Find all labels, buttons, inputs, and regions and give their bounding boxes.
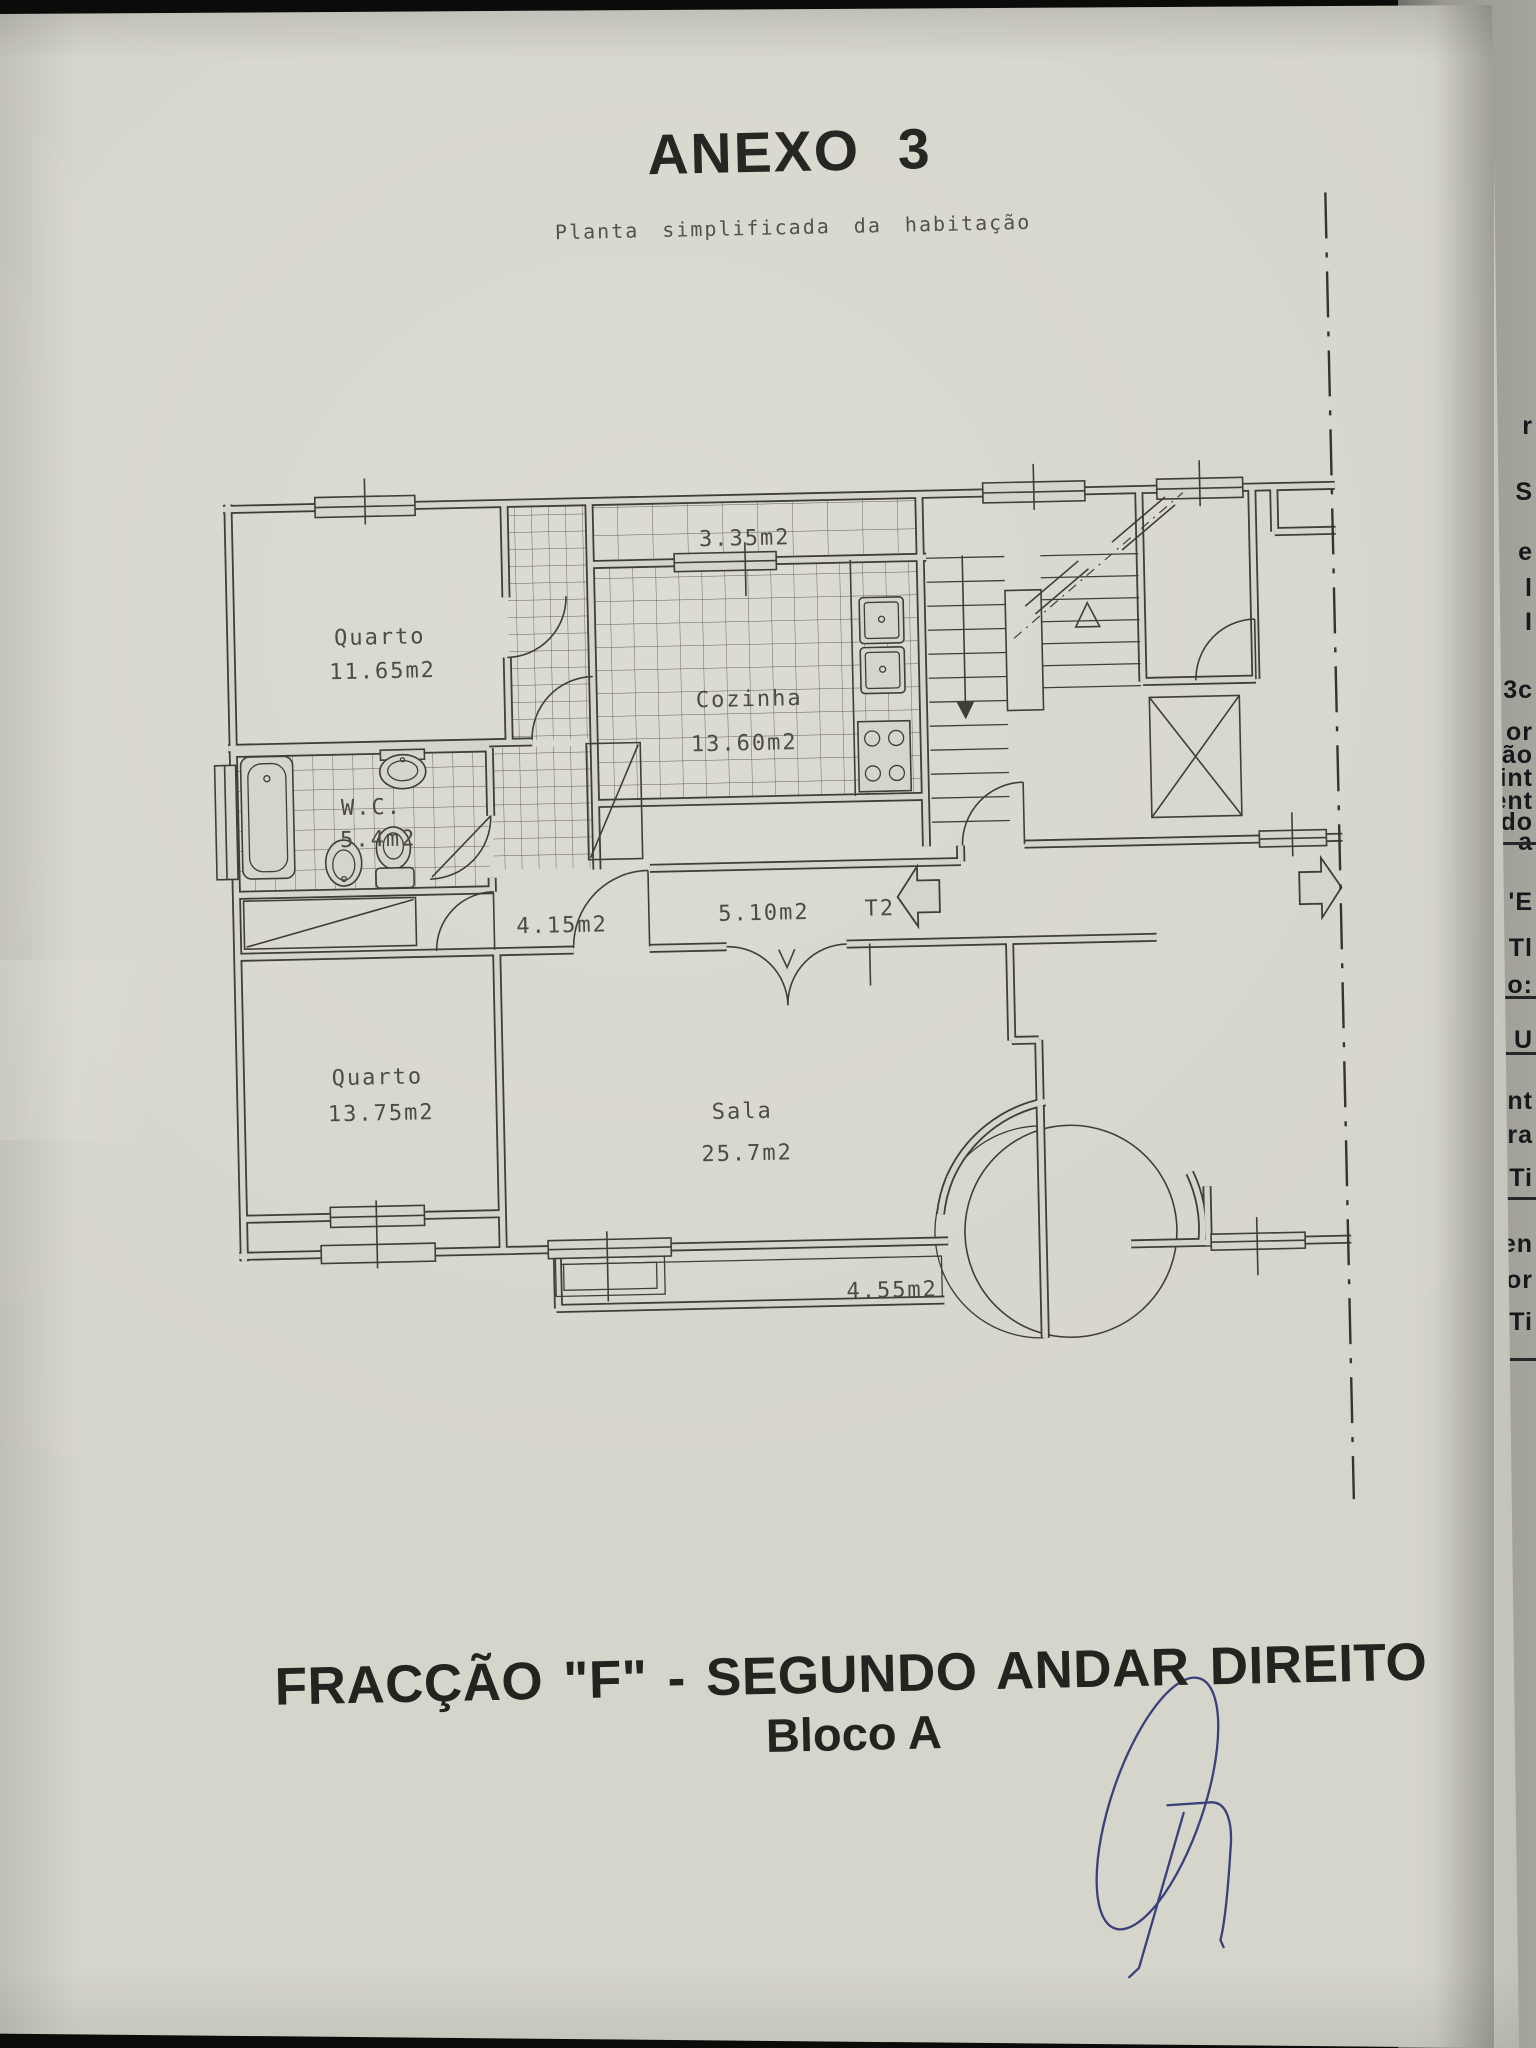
room-label-marquise-area: 3.35m2: [699, 525, 791, 552]
room-label-cozinha-name: Cozinha: [696, 686, 803, 713]
stair-break-line: [1011, 493, 1186, 639]
underpage-text-fragment: I: [1525, 608, 1533, 637]
tipologia-label: T2: [864, 896, 895, 922]
door-patamar: [1195, 619, 1256, 680]
washbasin-icon: [379, 749, 426, 789]
room-label-sala-name: Sala: [711, 1099, 773, 1125]
property-boundary-line: [1325, 192, 1354, 1499]
room-label-quarto2-name: Quarto: [331, 1064, 423, 1091]
room-label-wc-name: W.C.: [341, 795, 403, 821]
stove-icon: [858, 721, 912, 792]
window-quarto2: [320, 1199, 435, 1269]
stair-direction-triangle: [1075, 602, 1100, 627]
room-label-hall-area: 4.15m2: [516, 912, 608, 939]
underpage-text-fragment: or: [1506, 1266, 1533, 1295]
underpage-text-fragment: r: [1522, 412, 1533, 441]
window-stair-left: [982, 463, 1085, 511]
room-label-quarto1-area: 11.65m2: [329, 658, 436, 685]
room-label-quarto2-area: 13.75m2: [328, 1100, 435, 1127]
underpage-text-fragment: Ti: [1509, 1164, 1533, 1193]
entrance-arrow-right: [1299, 857, 1342, 918]
stair-treads: [926, 554, 1144, 823]
underpage-rule: [1500, 996, 1536, 999]
stairwell: [925, 491, 1242, 822]
door-entrada: [961, 782, 1024, 845]
elevator-shaft: [1149, 695, 1242, 817]
room-label-corredor-area: 5.10m2: [718, 900, 810, 927]
room-label-cozinha-area: 13.60m2: [691, 730, 798, 757]
wardrobe: [244, 897, 417, 949]
entrance-arrows: [897, 857, 1342, 927]
underpage-text-fragment: U: [1514, 1026, 1533, 1055]
window-rotunda: [1211, 1216, 1306, 1276]
entrance-arrow-left: [897, 866, 940, 927]
window-wc: [215, 765, 238, 879]
bathtub-icon: [240, 756, 295, 879]
door-sala-double: [727, 944, 848, 1007]
scanned-photo: rSelI3corãointentdoa'ETlo:UntoraTilenorT…: [0, 0, 1536, 2048]
opening-tick: [870, 944, 871, 986]
window-stair-right: [1156, 459, 1243, 507]
underpage-text-fragment: nt: [1507, 1087, 1533, 1116]
stair-arrow-head: [956, 701, 974, 719]
window-sala: [548, 1230, 672, 1303]
scanned-sheet: ANEXO 3 Planta simplificada da habitação: [0, 0, 1536, 2048]
sheet-content: ANEXO 3 Planta simplificada da habitação: [0, 0, 1536, 2048]
underpage-text-fragment: 'E: [1508, 888, 1533, 917]
underpage-text-fragment: S: [1515, 478, 1533, 507]
window-quarto1: [314, 477, 415, 525]
balcony-hatch: [555, 1126, 1044, 1349]
underpage-text-fragment: Tl: [1509, 934, 1533, 963]
underpage-rule: [1500, 842, 1536, 845]
window-landing: [1259, 812, 1327, 857]
room-label-sala-area: 25.7m2: [701, 1140, 793, 1167]
room-label-varanda-area: 4.55m2: [846, 1277, 938, 1304]
underpage-text-fragment: Ti: [1509, 1308, 1533, 1337]
underpage-text-fragment: l: [1525, 574, 1533, 603]
underpage-text-fragment: e: [1518, 538, 1533, 567]
room-label-wc-area: 5.4m2: [340, 826, 417, 853]
underpage-text-fragment: 3c: [1503, 676, 1533, 705]
room-label-quarto1-name: Quarto: [334, 624, 426, 651]
paper-edge-shadow: [1436, 0, 1494, 2048]
door-quarto2: [435, 892, 494, 951]
round-balcony: [963, 1123, 1180, 1340]
stair-newel: [1005, 590, 1044, 711]
